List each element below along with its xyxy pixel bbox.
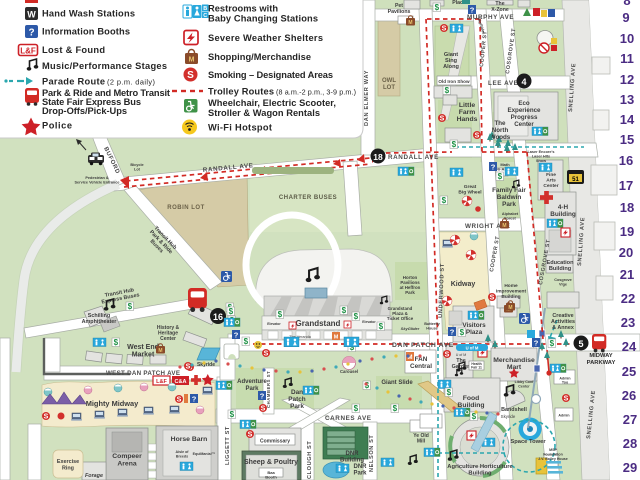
svg-text:20: 20 <box>619 245 633 260</box>
svg-text:Lot: Lot <box>134 168 141 172</box>
svg-text:Park: Park <box>245 386 259 392</box>
svg-text:18: 18 <box>373 152 383 162</box>
svg-text:SkyGlider: SkyGlider <box>401 326 420 331</box>
svg-text:19: 19 <box>620 224 634 239</box>
svg-text:DNR: DNR <box>354 464 368 470</box>
svg-text:Grandstand: Grandstand <box>296 319 341 328</box>
svg-text:CHAMBERS ST: CHAMBERS ST <box>266 371 271 408</box>
svg-text:Police: Police <box>42 121 72 131</box>
svg-text:Information Booths: Information Booths <box>42 27 130 37</box>
svg-text:Mighty Midway: Mighty Midway <box>86 399 139 408</box>
svg-text:Center: Center <box>160 336 176 342</box>
svg-text:Show: Show <box>536 159 546 163</box>
svg-text:Lost & Found: Lost & Found <box>42 45 105 55</box>
svg-text:Farm: Farm <box>459 109 476 116</box>
svg-text:Food: Food <box>463 395 480 402</box>
svg-text:Amphitheater: Amphitheater <box>82 319 118 325</box>
svg-text:Stroller & Wagon Rentals: Stroller & Wagon Rentals <box>208 108 320 118</box>
svg-text:Forage: Forage <box>85 473 103 479</box>
svg-text:C&A: C&A <box>175 379 187 385</box>
svg-text:Breeds: Breeds <box>176 455 188 459</box>
svg-text:Building: Building <box>340 458 364 464</box>
svg-text:Fine: Fine <box>546 172 556 178</box>
svg-text:Shopping/Merchandise: Shopping/Merchandise <box>208 52 311 62</box>
svg-text:Center: Center <box>514 121 534 128</box>
svg-text:13: 13 <box>620 92 634 107</box>
svg-text:15: 15 <box>620 132 634 147</box>
svg-text:Vlge: Vlge <box>559 283 567 287</box>
svg-text:M: M <box>334 335 339 341</box>
svg-text:MURPHY AVE: MURPHY AVE <box>467 14 514 21</box>
svg-text:Restrooms with: Restrooms with <box>208 4 278 14</box>
svg-text:4: 4 <box>521 77 526 87</box>
svg-text:Improvement: Improvement <box>496 289 527 295</box>
svg-text:House: House <box>426 327 438 331</box>
svg-text:Building: Building <box>468 471 492 477</box>
svg-text:4-H: 4-H <box>558 204 569 211</box>
svg-text:Visitors: Visitors <box>462 322 486 329</box>
svg-text:Experience: Experience <box>507 107 541 114</box>
svg-text:U of M: U of M <box>456 353 467 357</box>
svg-text:Little: Little <box>459 102 475 109</box>
svg-text:Garden: Garden <box>452 364 471 370</box>
svg-text:10: 10 <box>620 31 634 46</box>
svg-text:PARKWAY: PARKWAY <box>587 360 616 366</box>
svg-text:Eco: Eco <box>518 100 530 107</box>
svg-text:The: The <box>494 120 506 127</box>
svg-text:16: 16 <box>619 153 633 168</box>
svg-text:L&F: L&F <box>20 47 36 56</box>
svg-text:26: 26 <box>622 388 636 403</box>
svg-text:Music/Performance Stages: Music/Performance Stages <box>42 61 167 71</box>
svg-text:Severe Weather Shelters: Severe Weather Shelters <box>208 33 323 43</box>
svg-text:Laser Hits: Laser Hits <box>532 155 550 159</box>
svg-text:Exercise: Exercise <box>57 459 79 465</box>
svg-text:17: 17 <box>619 178 633 193</box>
svg-text:W: W <box>27 10 36 20</box>
svg-text:Commissary: Commissary <box>260 439 290 445</box>
svg-text:Smoking – Designated Areas: Smoking – Designated Areas <box>208 70 333 80</box>
svg-text:18: 18 <box>620 200 634 215</box>
svg-text:14: 14 <box>620 112 635 127</box>
svg-text:S: S <box>187 70 194 81</box>
svg-text:Agriculture Horticulture: Agriculture Horticulture <box>447 464 513 470</box>
svg-text:(8 a.m.-2 p.m., 3-9 p.m.): (8 a.m.-2 p.m., 3-9 p.m.) <box>276 88 356 97</box>
svg-text:Elevator: Elevator <box>267 322 281 326</box>
svg-text:Baby Changing Stations: Baby Changing Stations <box>208 14 318 24</box>
svg-text:West End: West End <box>127 344 159 351</box>
svg-text:Central: Central <box>410 363 432 370</box>
svg-text:(2 p.m. daily): (2 p.m. daily) <box>107 78 155 87</box>
svg-text:Dan: Dan <box>291 389 303 396</box>
svg-text:DNR: DNR <box>346 451 360 457</box>
svg-text:CLOUGH ST: CLOUGH ST <box>307 441 313 479</box>
svg-text:Pedestrian &: Pedestrian & <box>85 176 108 180</box>
svg-text:MSP: MSP <box>549 448 557 452</box>
svg-text:Progress: Progress <box>511 114 538 121</box>
svg-text:X-Zone: X-Zone <box>491 7 509 13</box>
svg-text:Drop-Offs/Pick-Ups: Drop-Offs/Pick-Ups <box>42 106 127 116</box>
svg-text:29: 29 <box>623 460 637 475</box>
svg-text:5: 5 <box>578 339 583 349</box>
svg-text:Along: Along <box>443 64 459 70</box>
svg-text:LIGGETT ST: LIGGETT ST <box>225 426 231 465</box>
svg-text:Skyride: Skyride <box>197 362 215 368</box>
svg-text:51: 51 <box>572 177 579 183</box>
svg-text:Park: Park <box>290 403 304 410</box>
svg-text:Service Vehicle Entrance: Service Vehicle Entrance <box>75 181 120 185</box>
svg-text:23: 23 <box>621 315 635 330</box>
svg-text:Space Tower: Space Tower <box>510 439 546 445</box>
svg-text:Hand Wash Stations: Hand Wash Stations <box>42 9 135 19</box>
svg-text:Horse Barn: Horse Barn <box>171 436 208 443</box>
svg-text:Fair 11: Fair 11 <box>471 366 482 370</box>
svg-text:Patch: Patch <box>288 396 305 403</box>
svg-text:Compeer: Compeer <box>112 453 142 460</box>
svg-text:Aisle of: Aisle of <box>176 450 190 454</box>
svg-text:CHARTER BUSES: CHARTER BUSES <box>279 195 337 201</box>
svg-text:Butterfly: Butterfly <box>424 322 440 326</box>
svg-text:Arts: Arts <box>546 178 556 184</box>
svg-text:M: M <box>189 57 195 64</box>
svg-text:CARNES AVE: CARNES AVE <box>325 415 372 422</box>
svg-text:LEE AVE: LEE AVE <box>488 80 518 87</box>
svg-text:Building: Building <box>501 294 520 300</box>
svg-text:Trolley Routes: Trolley Routes <box>208 87 274 97</box>
svg-text:Park: Park <box>502 201 516 208</box>
svg-text:Bicycle: Bicycle <box>130 163 143 167</box>
svg-text:Elevator: Elevator <box>362 320 376 324</box>
svg-text:DAN ELMER WAY: DAN ELMER WAY <box>364 70 370 126</box>
svg-text:16: 16 <box>213 312 223 322</box>
svg-text:Big Wheel: Big Wheel <box>458 190 481 196</box>
svg-text:21: 21 <box>620 267 634 282</box>
svg-text:Home: Home <box>504 283 518 289</box>
svg-text:Building: Building <box>550 211 576 218</box>
svg-text:Park: Park <box>353 471 367 477</box>
svg-text:25: 25 <box>622 364 636 379</box>
svg-text:27: 27 <box>623 412 637 427</box>
svg-text:Arena: Arena <box>117 461 136 468</box>
svg-text:Carousel: Carousel <box>340 369 358 374</box>
svg-text:Alphabet: Alphabet <box>502 212 519 216</box>
svg-text:Admin: Admin <box>558 414 569 418</box>
svg-text:?: ? <box>28 28 34 39</box>
svg-text:12: 12 <box>620 72 634 87</box>
svg-text:OWL: OWL <box>382 78 396 84</box>
svg-text:Old Iron Show: Old Iron Show <box>438 79 470 84</box>
svg-text:Skyride: Skyride <box>501 414 516 419</box>
svg-text:Adventure: Adventure <box>237 379 267 385</box>
svg-text:Building: Building <box>549 266 572 272</box>
svg-text:Ring: Ring <box>62 466 74 472</box>
svg-text:Too: Too <box>562 381 569 385</box>
svg-text:Bandshell: Bandshell <box>501 407 527 413</box>
svg-text:RANDALL AVE: RANDALL AVE <box>388 154 439 161</box>
svg-text:C: C <box>203 13 207 19</box>
svg-text:Hands: Hands <box>457 116 478 123</box>
svg-text:Center: Center <box>518 385 530 389</box>
svg-text:EquiMania!™: EquiMania!™ <box>193 452 216 456</box>
svg-text:Park: Park <box>405 290 415 295</box>
svg-text:Mill: Mill <box>417 439 426 445</box>
svg-text:LOT: LOT <box>383 85 395 91</box>
svg-text:& Annex: & Annex <box>552 325 574 331</box>
svg-text:Pavilions: Pavilions <box>388 9 411 15</box>
svg-text:North: North <box>492 127 509 134</box>
svg-text:NELSON ST: NELSON ST <box>369 435 375 472</box>
svg-text:Parade Route: Parade Route <box>42 77 105 87</box>
svg-text:Great: Great <box>464 184 477 190</box>
svg-text:28: 28 <box>623 436 637 451</box>
svg-text:9: 9 <box>622 10 629 25</box>
svg-text:Wi-Fi Hotspot: Wi-Fi Hotspot <box>208 123 272 133</box>
svg-text:Laser Encore's: Laser Encore's <box>527 150 554 154</box>
svg-text:Libby Conf: Libby Conf <box>515 380 535 384</box>
svg-text:DAN PATCH AVE: DAN PATCH AVE <box>392 342 454 349</box>
svg-text:Family Fair: Family Fair <box>492 187 526 194</box>
svg-text:11: 11 <box>620 51 634 66</box>
svg-text:Kidway: Kidway <box>451 281 476 288</box>
svg-text:Foundation: Foundation <box>543 453 563 457</box>
svg-text:Market: Market <box>132 352 155 359</box>
svg-text:MIDWAY: MIDWAY <box>589 353 612 359</box>
svg-text:Booth: Booth <box>265 475 277 480</box>
svg-text:L&F: L&F <box>156 379 167 385</box>
svg-text:ROBIN LOT: ROBIN LOT <box>167 205 205 211</box>
svg-text:Center: Center <box>543 183 558 189</box>
svg-text:Ticket Office: Ticket Office <box>387 316 414 321</box>
svg-text:U of M: U of M <box>466 346 479 351</box>
svg-text:Cosgrove: Cosgrove <box>554 278 572 282</box>
svg-text:B: B <box>203 6 207 12</box>
svg-text:Wheelchair, Electric Scooter,: Wheelchair, Electric Scooter, <box>208 98 336 108</box>
svg-text:Plaza: Plaza <box>466 329 483 336</box>
svg-text:24: 24 <box>622 339 637 354</box>
svg-text:Giant Slide: Giant Slide <box>381 380 413 386</box>
svg-text:8: 8 <box>623 0 630 8</box>
svg-text:Sheep & Poultry: Sheep & Poultry <box>244 459 298 466</box>
svg-text:Baldwin: Baldwin <box>497 194 522 201</box>
svg-text:22: 22 <box>621 291 635 306</box>
svg-text:Merchandise: Merchandise <box>493 357 535 364</box>
svg-text:J.V. Bailey House: J.V. Bailey House <box>538 457 568 461</box>
